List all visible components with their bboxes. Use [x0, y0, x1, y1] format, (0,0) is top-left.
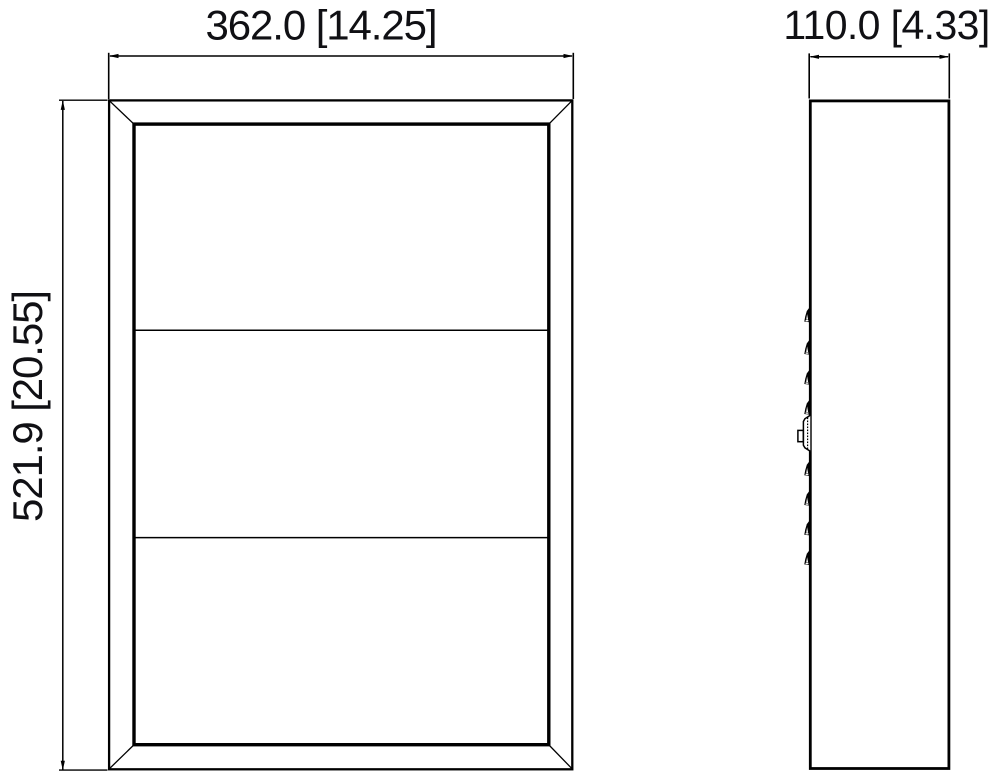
svg-text:521.9 [20.55]: 521.9 [20.55]: [4, 291, 51, 522]
svg-text:362.0 [14.25]: 362.0 [14.25]: [206, 2, 437, 49]
svg-text:110.0 [4.33]: 110.0 [4.33]: [783, 2, 989, 48]
